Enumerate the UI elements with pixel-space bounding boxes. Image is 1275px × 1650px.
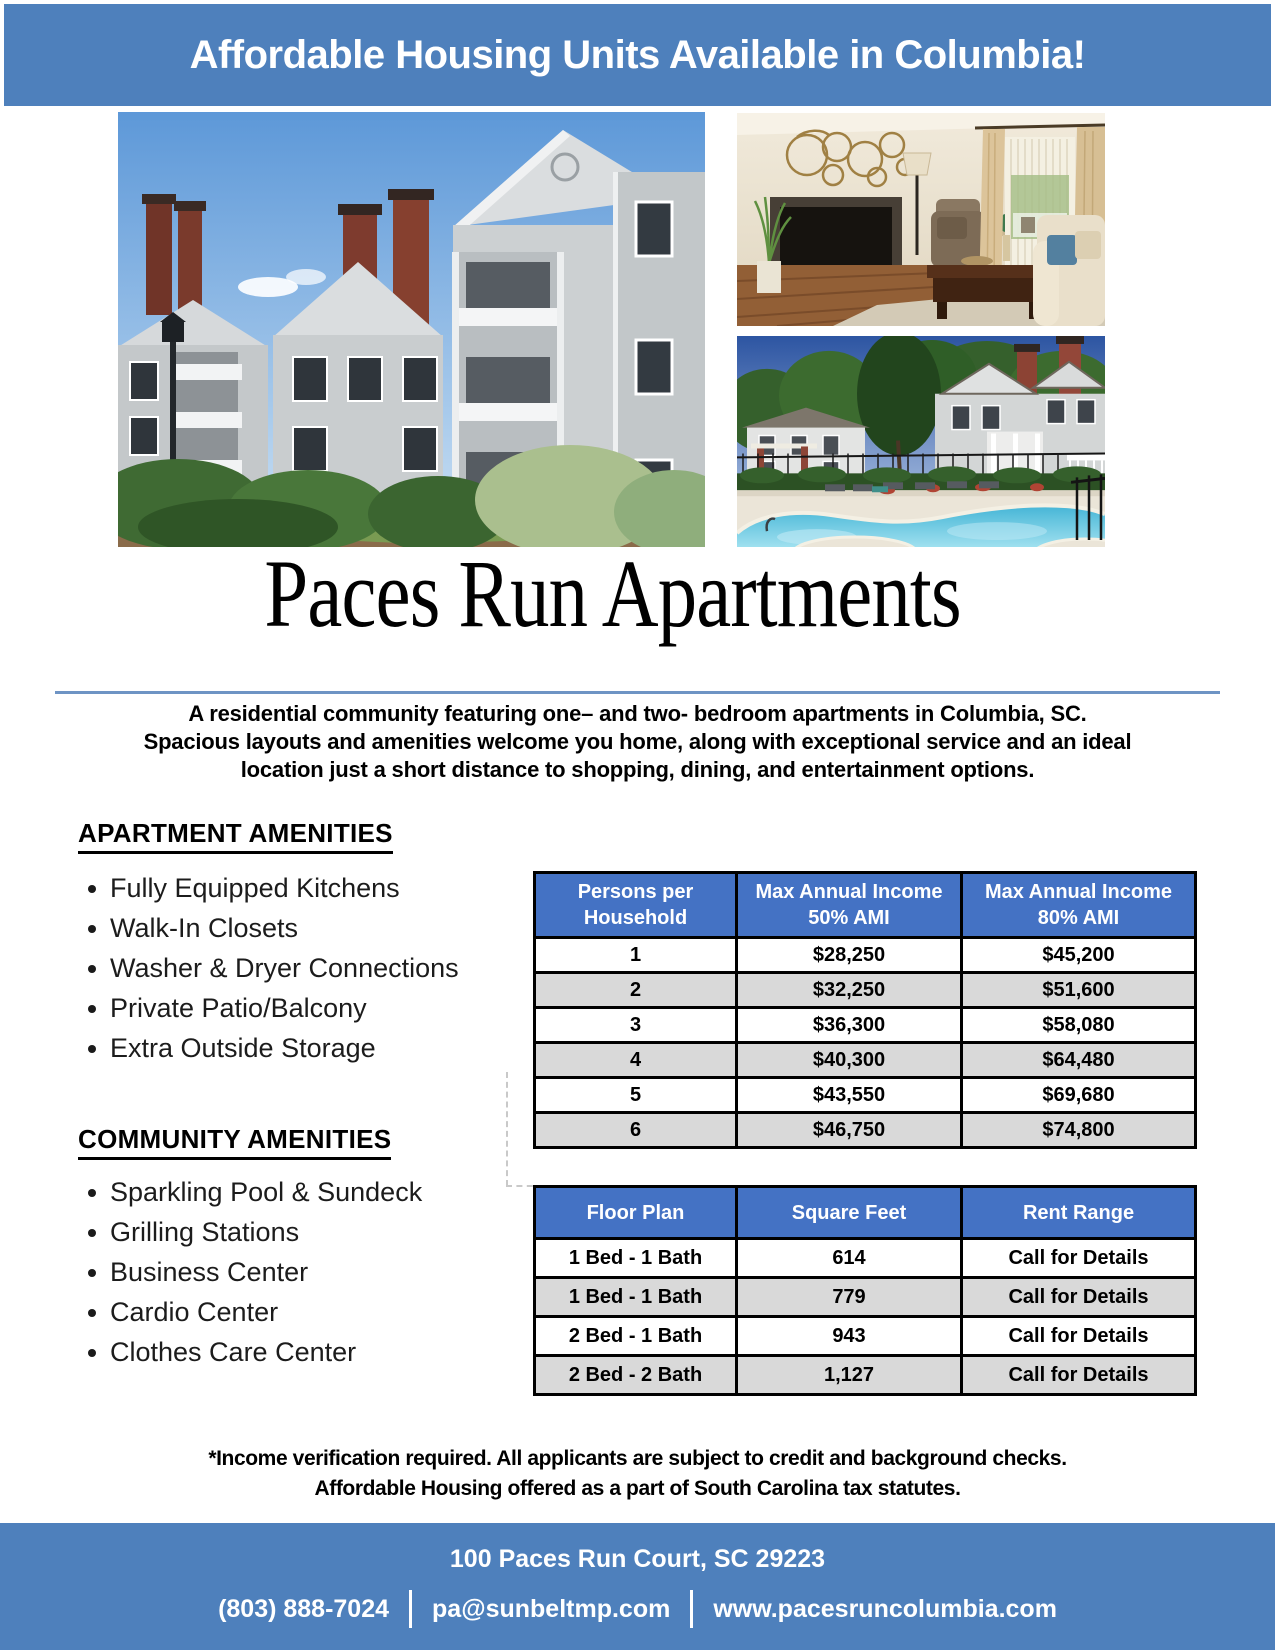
list-item: Clothes Care Center bbox=[88, 1332, 422, 1372]
table-row: 5 $43,550 $69,680 bbox=[535, 1078, 1196, 1113]
cell: $74,800 bbox=[962, 1113, 1196, 1148]
table-row: 2 $32,250 $51,600 bbox=[535, 973, 1196, 1008]
community-amenities-list: Sparkling Pool & Sundeck Grilling Statio… bbox=[88, 1172, 422, 1372]
flyer-page: Affordable Housing Units Available in Co… bbox=[0, 0, 1275, 1650]
table-row: 2 Bed - 2 Bath 1,127 Call for Details bbox=[535, 1356, 1196, 1395]
email-text: pa@sunbeltmp.com bbox=[432, 1595, 670, 1624]
cell: 3 bbox=[535, 1008, 737, 1043]
table-row: 2 Bed - 1 Bath 943 Call for Details bbox=[535, 1317, 1196, 1356]
list-item: Washer & Dryer Connections bbox=[88, 948, 459, 988]
footer-separator bbox=[409, 1590, 412, 1628]
description-line: location just a short distance to shoppi… bbox=[0, 756, 1275, 784]
list-item: Business Center bbox=[88, 1252, 422, 1292]
banner-title: Affordable Housing Units Available in Co… bbox=[190, 33, 1086, 78]
cell: $45,200 bbox=[962, 938, 1196, 973]
table-row: 1 Bed - 1 Bath 614 Call for Details bbox=[535, 1239, 1196, 1278]
floorplan-table: Floor Plan Square Feet Rent Range 1 Bed … bbox=[533, 1185, 1197, 1396]
footer-separator bbox=[690, 1590, 693, 1628]
contact-row: (803) 888-7024 pa@sunbeltmp.com www.pace… bbox=[218, 1590, 1057, 1628]
page-title: Paces Run Apartments bbox=[264, 544, 960, 645]
cell: $46,750 bbox=[737, 1113, 962, 1148]
list-item: Grilling Stations bbox=[88, 1212, 422, 1252]
cell: 1 Bed - 1 Bath bbox=[535, 1278, 737, 1317]
cell: $64,480 bbox=[962, 1043, 1196, 1078]
phone-text: (803) 888-7024 bbox=[218, 1595, 389, 1624]
website-text: www.pacesruncolumbia.com bbox=[713, 1595, 1057, 1624]
cell: 1 bbox=[535, 938, 737, 973]
description-line: Spacious layouts and amenities welcome y… bbox=[0, 728, 1275, 756]
living-room-photo bbox=[737, 113, 1105, 326]
hero: Paces Run Apartments bbox=[0, 544, 1225, 645]
list-item: Walk-In Closets bbox=[88, 908, 459, 948]
cell: 2 Bed - 2 Bath bbox=[535, 1356, 737, 1395]
cell: 5 bbox=[535, 1078, 737, 1113]
list-item: Extra Outside Storage bbox=[88, 1028, 459, 1068]
cell: $43,550 bbox=[737, 1078, 962, 1113]
table-header-row: Persons per Household Max Annual Income … bbox=[535, 873, 1196, 938]
textbox-dash-vertical bbox=[506, 1072, 508, 1186]
disclaimer: *Income verification required. All appli… bbox=[0, 1444, 1275, 1504]
building-exterior-photo bbox=[118, 112, 705, 547]
column-header: Max Annual Income 50% AMI bbox=[737, 873, 962, 938]
column-header: Floor Plan bbox=[535, 1187, 737, 1239]
income-table: Persons per Household Max Annual Income … bbox=[533, 871, 1197, 1149]
disclaimer-line: *Income verification required. All appli… bbox=[0, 1444, 1275, 1474]
column-header: Persons per Household bbox=[535, 873, 737, 938]
column-header: Max Annual Income 80% AMI bbox=[962, 873, 1196, 938]
cell: 1,127 bbox=[737, 1356, 962, 1395]
disclaimer-line: Affordable Housing offered as a part of … bbox=[0, 1474, 1275, 1504]
apartment-amenities-list: Fully Equipped Kitchens Walk-In Closets … bbox=[88, 868, 459, 1068]
cell: 2 Bed - 1 Bath bbox=[535, 1317, 737, 1356]
cell: $58,080 bbox=[962, 1008, 1196, 1043]
pool-photo bbox=[737, 336, 1105, 547]
apartment-amenities-heading: APARTMENT AMENITIES bbox=[78, 818, 393, 854]
description: A residential community featuring one– a… bbox=[0, 700, 1275, 784]
table-row: 3 $36,300 $58,080 bbox=[535, 1008, 1196, 1043]
table-row: 6 $46,750 $74,800 bbox=[535, 1113, 1196, 1148]
cell: Call for Details bbox=[962, 1317, 1196, 1356]
cell: 6 bbox=[535, 1113, 737, 1148]
community-amenities-heading: COMMUNITY AMENITIES bbox=[78, 1124, 391, 1160]
cell: $40,300 bbox=[737, 1043, 962, 1078]
living-room-illustration bbox=[737, 113, 1105, 326]
cell: $28,250 bbox=[737, 938, 962, 973]
cell: Call for Details bbox=[962, 1356, 1196, 1395]
description-line: A residential community featuring one– a… bbox=[0, 700, 1275, 728]
sofa bbox=[1033, 215, 1105, 326]
cell: 614 bbox=[737, 1239, 962, 1278]
table-row: 4 $40,300 $64,480 bbox=[535, 1043, 1196, 1078]
cell: $51,600 bbox=[962, 973, 1196, 1008]
cell: 4 bbox=[535, 1043, 737, 1078]
cell: 943 bbox=[737, 1317, 962, 1356]
cell: $36,300 bbox=[737, 1008, 962, 1043]
cell: 779 bbox=[737, 1278, 962, 1317]
table-row: 1 Bed - 1 Bath 779 Call for Details bbox=[535, 1278, 1196, 1317]
footer-banner: 100 Paces Run Court, SC 29223 (803) 888-… bbox=[0, 1523, 1275, 1650]
address-text: 100 Paces Run Court, SC 29223 bbox=[450, 1545, 825, 1574]
cell: $32,250 bbox=[737, 973, 962, 1008]
building-exterior-illustration bbox=[118, 112, 705, 547]
pool-illustration bbox=[737, 336, 1105, 547]
cell: 1 Bed - 1 Bath bbox=[535, 1239, 737, 1278]
cell: Call for Details bbox=[962, 1278, 1196, 1317]
cell: $69,680 bbox=[962, 1078, 1196, 1113]
title-divider bbox=[55, 691, 1220, 694]
table-header-row: Floor Plan Square Feet Rent Range bbox=[535, 1187, 1196, 1239]
table-row: 1 $28,250 $45,200 bbox=[535, 938, 1196, 973]
list-item: Fully Equipped Kitchens bbox=[88, 868, 459, 908]
column-header: Square Feet bbox=[737, 1187, 962, 1239]
header-banner: Affordable Housing Units Available in Co… bbox=[4, 4, 1271, 106]
cell: Call for Details bbox=[962, 1239, 1196, 1278]
list-item: Sparkling Pool & Sundeck bbox=[88, 1172, 422, 1212]
column-header: Rent Range bbox=[962, 1187, 1196, 1239]
list-item: Private Patio/Balcony bbox=[88, 988, 459, 1028]
cell: 2 bbox=[535, 973, 737, 1008]
list-item: Cardio Center bbox=[88, 1292, 422, 1332]
